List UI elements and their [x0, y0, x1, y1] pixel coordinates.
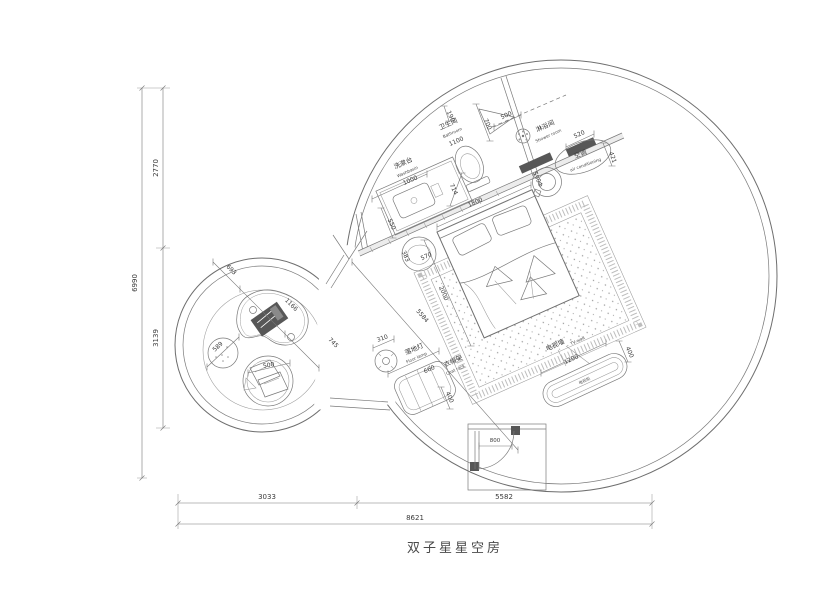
- dim-lamp: 310: [376, 333, 389, 344]
- door-post: [470, 462, 479, 471]
- floor-plan-drawing: 2770 3139 6990 3033 5582 8621 693 1166 7…: [0, 0, 837, 592]
- shower-head-icon: [516, 129, 530, 143]
- corridor-opening-mask: [314, 244, 396, 410]
- label-tv-cabinet: 电视柜: [577, 375, 590, 386]
- dim-stool-offset: 383: [400, 250, 411, 263]
- dim-bottom-right: 5582: [495, 493, 513, 501]
- dim-ac: 421: [607, 151, 618, 164]
- floor-plan-canvas: 2770 3139 6990 3033 5582 8621 693 1166 7…: [0, 0, 837, 592]
- drawing-title: 双子星星空房: [407, 540, 503, 556]
- kidney-table: [237, 290, 309, 345]
- dim-left-total: 6990: [131, 274, 139, 292]
- entrance-vestibule: [468, 424, 546, 490]
- dim-left-bottom: 3139: [152, 329, 160, 347]
- dim-chain-2: 1166: [283, 297, 299, 313]
- door-post: [511, 426, 520, 435]
- dim-toilet-off: 714: [448, 183, 459, 196]
- dim-bathroom: 1100: [448, 135, 465, 148]
- dim-door: 800: [490, 438, 501, 444]
- dim-bottom-left: 3033: [258, 493, 276, 501]
- shower-glass-line: [492, 95, 566, 127]
- dim-pouf: 589: [211, 340, 224, 353]
- dim-room-diag: 5584: [414, 308, 429, 324]
- dim-tv-depth: 400: [624, 346, 635, 359]
- door-swing-arc: [478, 431, 514, 469]
- dim-bottom-total: 8621: [406, 514, 424, 522]
- dim-stool: 570: [420, 251, 433, 262]
- dim-chair: 500: [262, 361, 275, 370]
- dim-left-top: 2770: [152, 159, 160, 177]
- dim-coat-width: 660: [423, 364, 436, 375]
- dim-washbasin: 1000: [402, 174, 419, 187]
